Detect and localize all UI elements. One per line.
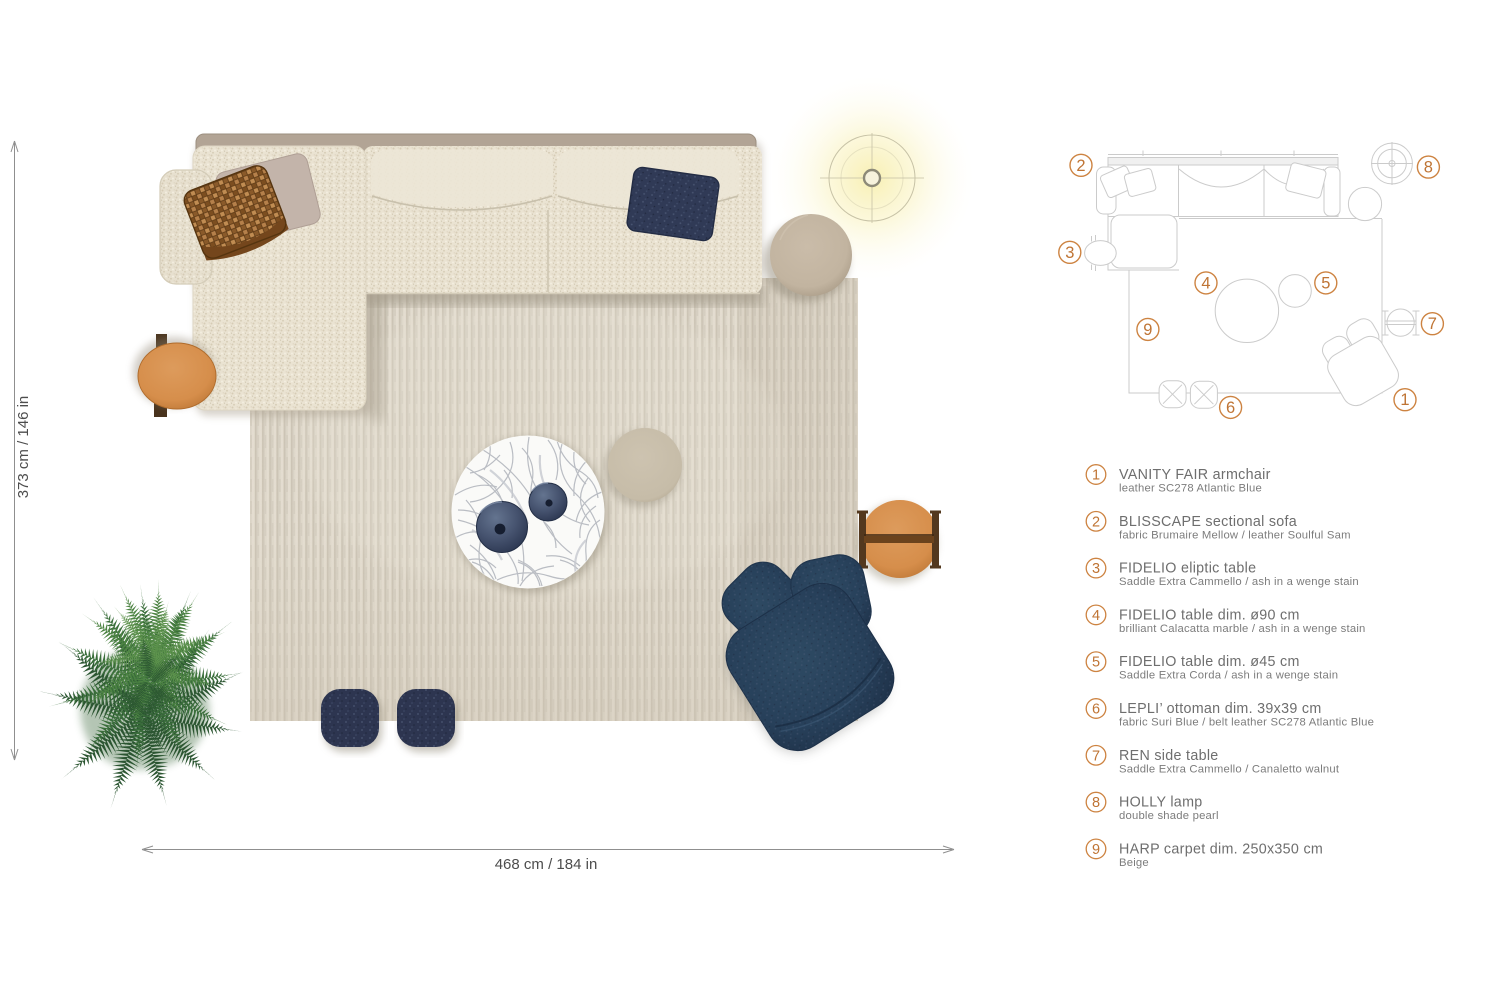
- svg-text:fabric Suri Blue / belt leathe: fabric Suri Blue / belt leather SC278 At…: [1119, 717, 1374, 729]
- svg-text:1: 1: [1092, 468, 1100, 484]
- svg-text:2: 2: [1092, 514, 1100, 530]
- svg-text:Saddle Extra Corda / ash in a: Saddle Extra Corda / ash in a wenge stai…: [1119, 670, 1338, 682]
- svg-text:brilliant Calacatta marble / a: brilliant Calacatta marble / ash in a we…: [1119, 623, 1366, 635]
- svg-text:9: 9: [1143, 321, 1152, 339]
- svg-text:373 cm / 146 in: 373 cm / 146 in: [15, 396, 32, 499]
- svg-text:FIDELIO table dim. ø90 cm: FIDELIO table dim. ø90 cm: [1119, 607, 1300, 623]
- svg-text:5: 5: [1321, 274, 1330, 292]
- svg-text:7: 7: [1092, 748, 1100, 764]
- svg-text:6: 6: [1092, 702, 1100, 718]
- svg-text:4: 4: [1201, 274, 1210, 292]
- svg-text:REN side table: REN side table: [1119, 748, 1219, 764]
- svg-text:9: 9: [1092, 842, 1100, 858]
- svg-text:4: 4: [1092, 608, 1100, 624]
- svg-text:Saddle Extra Cammello / ash in: Saddle Extra Cammello / ash in a wenge s…: [1119, 576, 1359, 588]
- svg-text:double shade pearl: double shade pearl: [1119, 810, 1219, 822]
- svg-text:BLISSCAPE sectional sofa: BLISSCAPE sectional sofa: [1119, 514, 1297, 530]
- svg-text:8: 8: [1092, 795, 1100, 811]
- svg-text:Saddle Extra Cammello / Canale: Saddle Extra Cammello / Canaletto walnut: [1119, 763, 1340, 775]
- svg-text:6: 6: [1226, 399, 1235, 417]
- svg-text:3: 3: [1092, 561, 1100, 577]
- svg-text:8: 8: [1424, 159, 1433, 177]
- svg-text:LEPLI’ ottoman dim. 39x39 cm: LEPLI’ ottoman dim. 39x39 cm: [1119, 701, 1322, 717]
- svg-text:1: 1: [1400, 391, 1409, 409]
- svg-text:HOLLY lamp: HOLLY lamp: [1119, 795, 1203, 811]
- svg-text:2: 2: [1076, 157, 1085, 175]
- svg-text:FIDELIO table dim. ø45 cm: FIDELIO table dim. ø45 cm: [1119, 654, 1300, 670]
- svg-text:Beige: Beige: [1119, 857, 1149, 869]
- svg-text:HARP carpet dim. 250x350 cm: HARP carpet dim. 250x350 cm: [1119, 841, 1323, 857]
- svg-text:VANITY FAIR armchair: VANITY FAIR armchair: [1119, 467, 1271, 483]
- svg-text:7: 7: [1428, 315, 1437, 333]
- svg-text:FIDELIO eliptic table: FIDELIO eliptic table: [1119, 561, 1256, 577]
- svg-text:3: 3: [1065, 244, 1074, 262]
- svg-text:5: 5: [1092, 655, 1100, 671]
- svg-text:fabric Brumaire Mellow / leath: fabric Brumaire Mellow / leather Soulful…: [1119, 529, 1351, 541]
- svg-text:468 cm / 184 in: 468 cm / 184 in: [495, 856, 598, 873]
- svg-text:leather SC278 Atlantic Blue: leather SC278 Atlantic Blue: [1119, 483, 1262, 495]
